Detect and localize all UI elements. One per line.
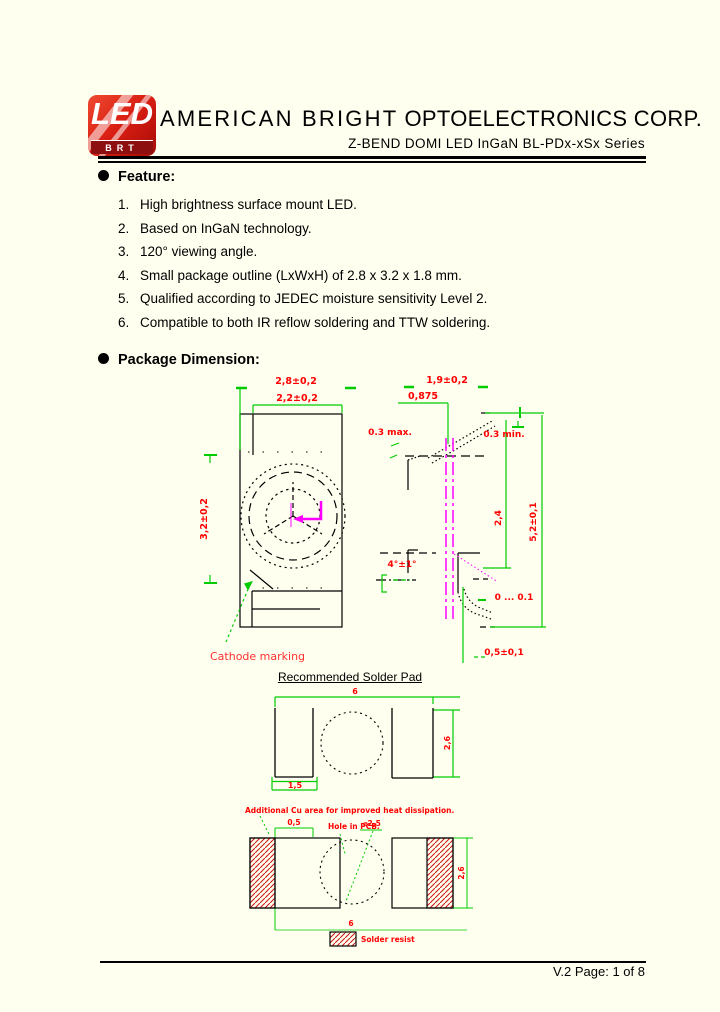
cathode-marking-label: Cathode marking (210, 650, 305, 663)
package-dimension-heading: Package Dimension: (118, 352, 260, 368)
dim-03-min: 0.3 min. (483, 430, 524, 440)
die-marker (291, 501, 321, 527)
footer-rule (100, 961, 646, 963)
dim-lead-pitch: 1,9±0,2 (426, 375, 468, 386)
dim-pad-span: 6 (352, 688, 358, 696)
header: AMERICAN BRIGHT OPTOELECTRONICS CORP. Z-… (160, 106, 645, 151)
company-logo: LED BRT (88, 95, 156, 156)
company-name: AMERICAN BRIGHT (160, 106, 398, 131)
dim-lead-angle: 4°±1° (387, 560, 416, 570)
dim-gap: 0 ... 0.1 (495, 593, 534, 603)
header-rule-thick (98, 156, 646, 159)
item-text: High brightness surface mount LED. (140, 198, 357, 212)
page-footer: V.2 Page: 1 of 8 (553, 964, 645, 979)
dim-body-height: 3,2±0,2 (199, 498, 210, 540)
feature-list: 1.High brightness surface mount LED. 2.B… (118, 198, 490, 339)
solder-pad-dimension-lines (272, 697, 460, 790)
dim-total-height: 5,2±0,1 (529, 502, 539, 541)
item-number: 4. (118, 269, 140, 283)
item-number: 1. (118, 198, 140, 212)
dim-cu-width: 0,5 (287, 818, 300, 827)
item-text: Small package outline (LxWxH) of 2.8 x 3… (140, 269, 462, 283)
dim-cu-pad-height: 2,6 (457, 866, 466, 879)
item-number: 3. (118, 245, 140, 259)
package-dimension-drawing: 2,8±0,2 2,2±0,2 3,2±0,2 Cathode marking (190, 370, 560, 670)
solder-pad-title: Recommended Solder Pad (260, 670, 440, 684)
list-item: 4.Small package outline (LxWxH) of 2.8 x… (118, 269, 490, 283)
logo-brt-text: BRT (91, 140, 153, 154)
list-item: 3.120° viewing angle. (118, 245, 490, 259)
lead-centerlines (446, 438, 498, 620)
dim-hole-diameter: ⌀2,5 (363, 819, 381, 828)
bullet-icon (98, 353, 109, 364)
item-text: Qualified according to JEDEC moisture se… (140, 292, 487, 306)
company-title: AMERICAN BRIGHT OPTOELECTRONICS CORP. (160, 106, 645, 132)
list-item: 2.Based on InGaN technology. (118, 222, 490, 236)
feature-heading: Feature: (118, 169, 175, 185)
dim-standoff: 0,5±0,1 (484, 648, 523, 658)
legend-hatch-swatch (330, 932, 356, 946)
dim-body-thickness: 2,4 (494, 510, 504, 526)
company-suffix: OPTOELECTRONICS CORP. (404, 106, 702, 131)
bullet-icon (98, 170, 109, 181)
list-item: 1.High brightness surface mount LED. (118, 198, 490, 212)
logo-led-text: LED (88, 96, 156, 132)
datasheet-page: { "page": { "footer_text": "V.2 Page: 1 … (0, 0, 720, 1012)
cu-area-drawing: Additional Cu area for improved heat dis… (240, 803, 480, 953)
list-item: 6.Compatible to both IR reflow soldering… (118, 316, 490, 330)
solder-pad-drawing: 6 1,5 2,6 (260, 688, 470, 796)
solder-pad-outline (275, 708, 433, 778)
top-view-dimension-lines (204, 388, 356, 642)
dim-terminal-width: 2,2±0,2 (276, 393, 318, 404)
dim-pad-height: 2,6 (443, 735, 452, 750)
cu-note: Additional Cu area for improved heat dis… (245, 806, 454, 815)
item-text: 120° viewing angle. (140, 245, 257, 259)
item-number: 5. (118, 292, 140, 306)
item-number: 6. (118, 316, 140, 330)
series-subtitle: Z-BEND DOMI LED InGaN BL-PDx-xSx Series (160, 136, 645, 151)
dim-03-max: 0.3 max. (368, 428, 412, 438)
dim-cu-span: 6 (348, 919, 353, 928)
dim-body-width: 2,8±0,2 (275, 376, 317, 387)
dim-half-pitch: 0,875 (408, 391, 438, 402)
item-text: Based on InGaN technology. (140, 222, 312, 236)
dim-pad-width: 1,5 (288, 781, 303, 790)
cu-pad-outline (250, 838, 453, 908)
legend-label: Solder resist (361, 935, 415, 944)
top-view-outline (240, 414, 345, 627)
header-rule-thin (98, 161, 646, 163)
item-text: Compatible to both IR reflow soldering a… (140, 316, 490, 330)
list-item: 5.Qualified according to JEDEC moisture … (118, 292, 490, 306)
item-number: 2. (118, 222, 140, 236)
